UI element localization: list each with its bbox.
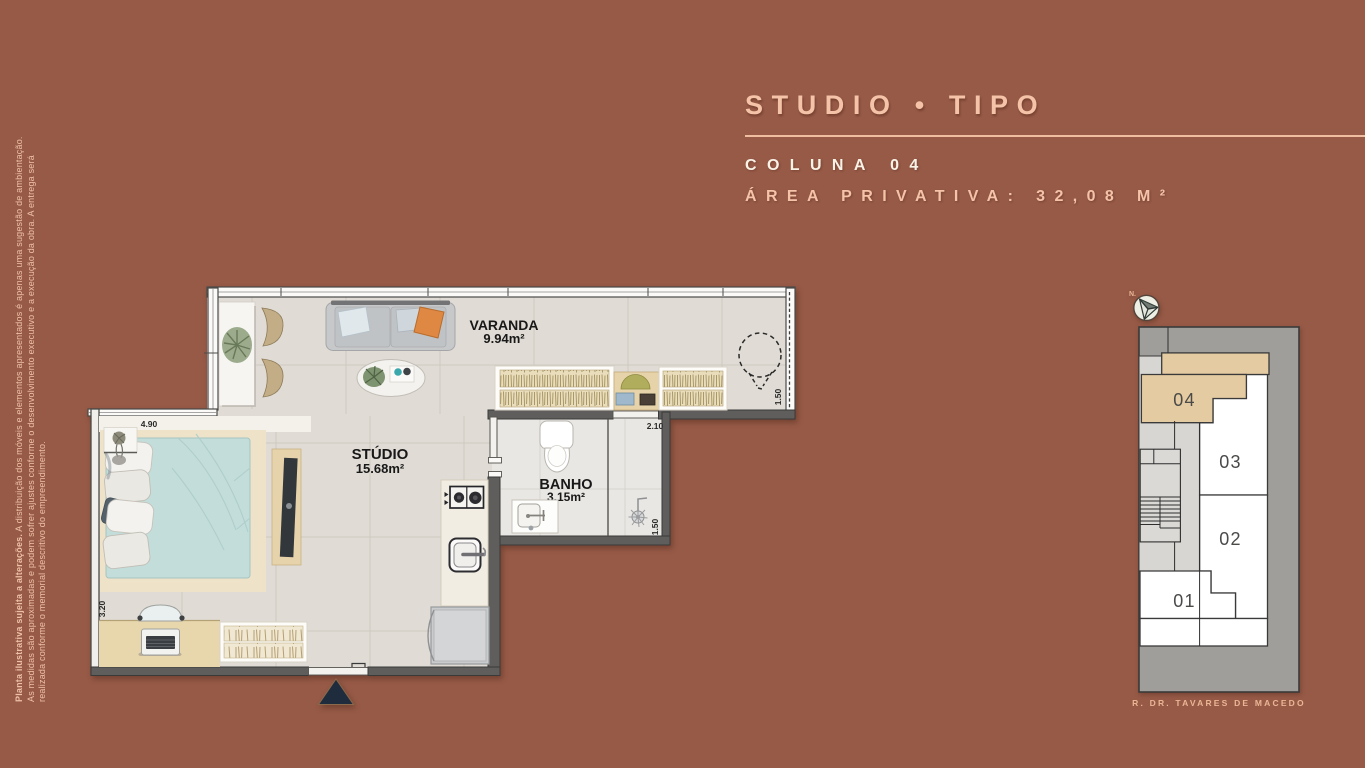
svg-text:02: 02: [1219, 529, 1241, 549]
svg-text:01: 01: [1173, 591, 1195, 611]
svg-text:3.20: 3.20: [97, 600, 107, 617]
svg-text:1.50: 1.50: [650, 518, 660, 535]
svg-text:15.68m²: 15.68m²: [356, 461, 405, 476]
svg-text:1.50: 1.50: [773, 388, 783, 405]
svg-text:9.94m²: 9.94m²: [483, 331, 525, 346]
svg-text:04: 04: [1173, 390, 1195, 410]
svg-text:4.90: 4.90: [141, 419, 158, 429]
svg-text:N.: N.: [1129, 291, 1136, 298]
svg-text:2.10: 2.10: [647, 421, 664, 431]
svg-text:03: 03: [1219, 452, 1241, 472]
